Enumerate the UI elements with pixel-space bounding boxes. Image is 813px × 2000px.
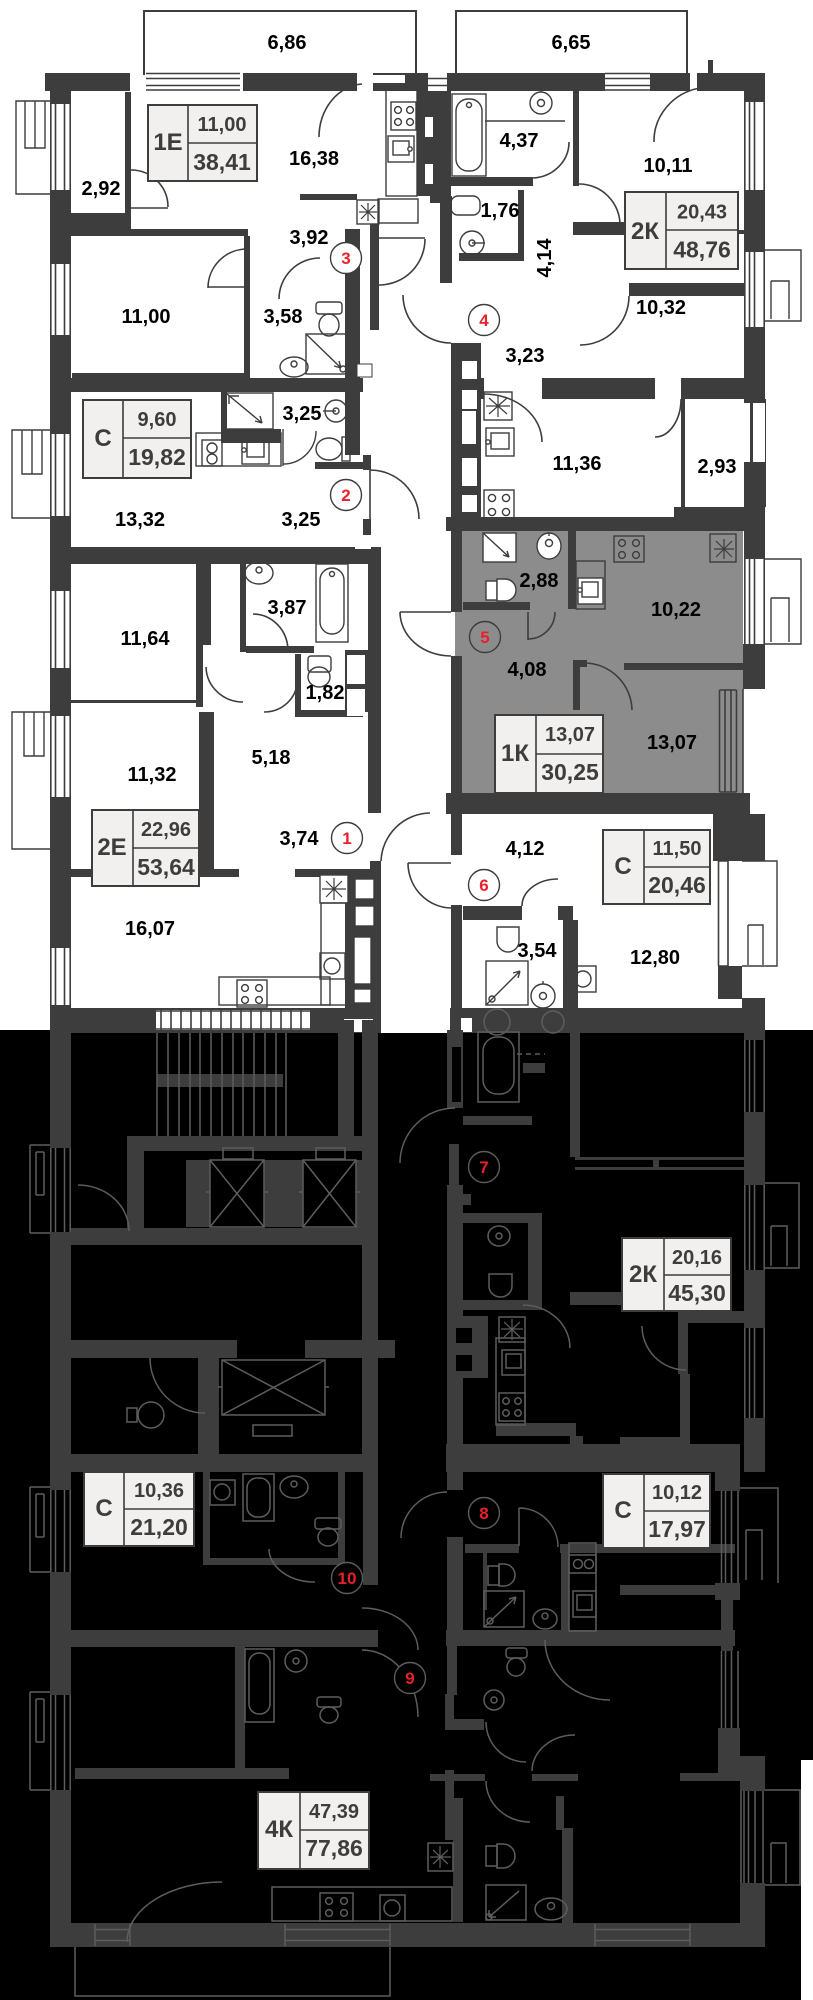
svg-text:2: 2: [341, 486, 350, 505]
svg-text:1: 1: [342, 829, 351, 848]
svg-text:3,74: 3,74: [280, 828, 320, 850]
svg-text:2,93: 2,93: [698, 456, 737, 478]
svg-text:10,32: 10,32: [636, 297, 686, 319]
svg-text:3,58: 3,58: [264, 306, 303, 328]
svg-text:53,64: 53,64: [137, 854, 195, 880]
svg-text:4: 4: [479, 311, 489, 330]
svg-text:20,16: 20,16: [672, 1247, 722, 1269]
svg-text:10: 10: [338, 1569, 357, 1588]
svg-text:1Е: 1Е: [153, 129, 182, 156]
svg-text:22,96: 22,96: [141, 819, 191, 841]
svg-text:С: С: [95, 1495, 112, 1522]
svg-text:11,00: 11,00: [122, 306, 171, 328]
svg-text:4К: 4К: [265, 1816, 293, 1843]
svg-text:2Е: 2Е: [97, 834, 126, 861]
svg-text:5,18: 5,18: [252, 747, 291, 769]
svg-text:2К: 2К: [629, 1261, 657, 1288]
svg-text:16,07: 16,07: [125, 918, 175, 940]
svg-text:77,86: 77,86: [305, 1835, 363, 1861]
svg-text:5: 5: [480, 628, 489, 647]
svg-text:С: С: [614, 1497, 631, 1524]
svg-text:19,82: 19,82: [128, 444, 186, 470]
svg-text:13,07: 13,07: [545, 724, 595, 746]
svg-text:16,38: 16,38: [289, 148, 339, 170]
svg-text:45,30: 45,30: [668, 1280, 726, 1306]
svg-text:10,36: 10,36: [134, 1480, 184, 1502]
svg-text:С: С: [614, 853, 631, 880]
svg-text:6,65: 6,65: [552, 32, 591, 54]
svg-text:4,14: 4,14: [534, 238, 556, 278]
svg-text:21,20: 21,20: [130, 1514, 188, 1540]
svg-text:11,00: 11,00: [198, 114, 247, 136]
svg-text:3: 3: [341, 249, 350, 268]
svg-text:3,25: 3,25: [283, 403, 322, 425]
svg-text:2,88: 2,88: [520, 570, 559, 592]
svg-text:1,82: 1,82: [306, 682, 345, 704]
svg-text:3,25: 3,25: [282, 509, 321, 531]
svg-text:17,97: 17,97: [648, 1516, 706, 1542]
svg-text:11,50: 11,50: [653, 838, 702, 860]
svg-text:38,41: 38,41: [193, 149, 251, 175]
svg-text:13,07: 13,07: [647, 732, 697, 754]
svg-text:3,87: 3,87: [268, 597, 307, 619]
svg-text:2К: 2К: [631, 218, 659, 245]
svg-text:12,80: 12,80: [630, 947, 680, 969]
svg-text:47,39: 47,39: [309, 1801, 359, 1823]
svg-text:10,11: 10,11: [644, 155, 693, 177]
svg-text:11,36: 11,36: [553, 453, 602, 475]
svg-text:4,12: 4,12: [506, 838, 545, 860]
svg-text:11,32: 11,32: [128, 764, 177, 786]
svg-text:13,32: 13,32: [115, 509, 165, 531]
svg-text:6: 6: [479, 876, 488, 895]
svg-text:20,43: 20,43: [677, 202, 727, 224]
svg-text:7: 7: [479, 1158, 488, 1177]
svg-text:3,23: 3,23: [506, 345, 545, 367]
svg-text:8: 8: [479, 1504, 488, 1523]
svg-text:9,60: 9,60: [138, 409, 177, 431]
svg-text:10,12: 10,12: [652, 1482, 702, 1504]
svg-text:1,76: 1,76: [481, 200, 520, 222]
svg-text:9: 9: [405, 1669, 414, 1688]
svg-text:3,92: 3,92: [290, 227, 329, 249]
svg-text:4,37: 4,37: [500, 130, 539, 152]
svg-text:3,54: 3,54: [518, 940, 558, 962]
svg-text:1К: 1К: [501, 740, 529, 767]
svg-text:30,25: 30,25: [541, 759, 599, 785]
svg-text:4,08: 4,08: [508, 659, 547, 681]
svg-text:48,76: 48,76: [673, 237, 731, 263]
svg-text:2,92: 2,92: [82, 178, 121, 200]
svg-text:11,64: 11,64: [121, 628, 171, 650]
svg-text:20,46: 20,46: [648, 872, 706, 898]
svg-text:С: С: [94, 425, 111, 452]
svg-text:10,22: 10,22: [651, 599, 701, 621]
svg-text:6,86: 6,86: [268, 32, 307, 54]
